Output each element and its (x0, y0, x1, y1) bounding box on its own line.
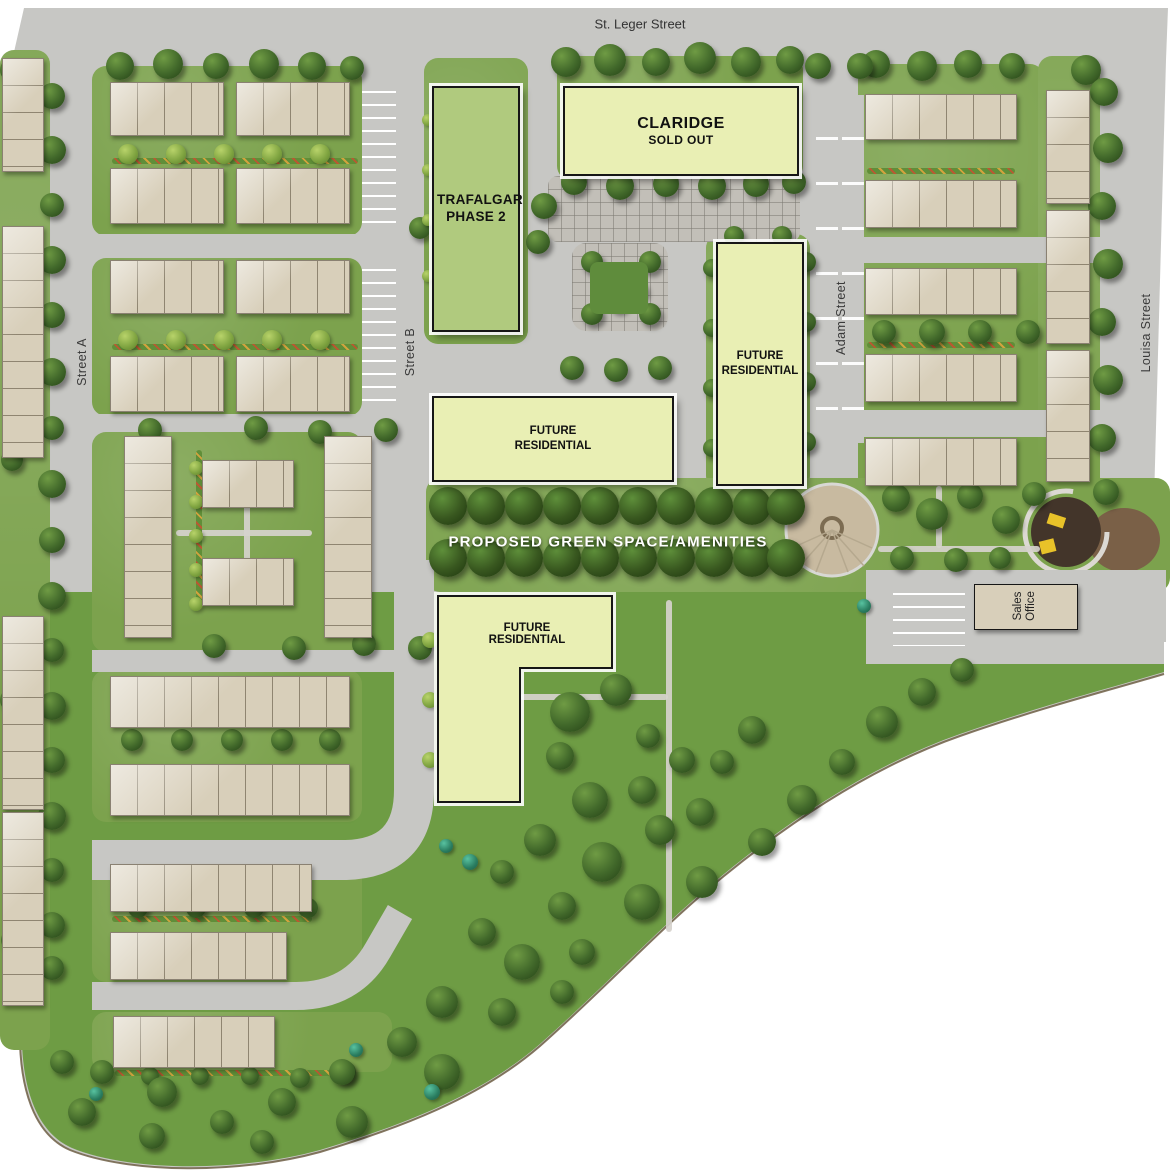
townhouse-block (110, 260, 224, 314)
street-label-st-leger: St. Leger Street (594, 17, 685, 32)
townhouse-block (236, 82, 350, 136)
street-label-street-a: Street A (75, 338, 89, 386)
future-residential-label: FUTURE RESIDENTIAL (503, 424, 603, 454)
townhouse-block (1046, 350, 1090, 482)
trafalgar-label: TRAFALGAR PHASE 2 (437, 192, 515, 226)
street-label-street-b: Street B (403, 328, 417, 376)
townhouse-block (865, 180, 1017, 228)
townhouse-block (110, 356, 224, 412)
townhouse-block (124, 436, 172, 638)
townhouse-block (110, 676, 350, 728)
townhouse-block (236, 260, 350, 314)
future-residential-central-building[interactable]: FUTURE RESIDENTIAL (432, 396, 674, 482)
townhouse-block (2, 616, 44, 810)
townhouse-block (865, 94, 1017, 140)
townhouse-block (865, 354, 1017, 402)
townhouse-block (202, 460, 294, 508)
street-label-louisa: Louisa Street (1139, 294, 1153, 373)
townhouse-block (2, 812, 44, 1006)
townhouse-block (324, 436, 372, 638)
site-plan-map: TRAFALGAR PHASE 2 CLARIDGE SOLD OUT FUTU… (0, 0, 1170, 1176)
townhouse-block (2, 58, 44, 172)
townhouse-block (110, 864, 312, 912)
townhouse-block (236, 168, 350, 224)
townhouse-block (1046, 90, 1090, 204)
future-residential-label: FUTURE RESIDENTIAL (472, 622, 582, 646)
townhouse-block (110, 168, 224, 224)
claridge-building[interactable]: CLARIDGE SOLD OUT (563, 86, 799, 176)
townhouse-block (110, 82, 224, 136)
townhouse-block (236, 356, 350, 412)
townhouse-block (865, 438, 1017, 486)
townhouse-block (1046, 210, 1090, 344)
sales-office-label: Sales Office (1012, 582, 1038, 630)
townhouse-block (110, 764, 350, 816)
claridge-name: CLARIDGE (637, 115, 725, 133)
townhouse-block (113, 1016, 275, 1068)
green-space-annotation: PROPOSED GREEN SPACE/AMENITIES (448, 534, 767, 551)
future-residential-label: FUTURE RESIDENTIAL (720, 349, 800, 379)
trafalgar-phase2-building[interactable]: TRAFALGAR PHASE 2 (432, 86, 520, 332)
claridge-status: SOLD OUT (637, 133, 725, 147)
townhouse-block (2, 226, 44, 458)
future-residential-east-building[interactable]: FUTURE RESIDENTIAL (716, 242, 804, 486)
townhouse-block (865, 268, 1017, 315)
townhouse-block (202, 558, 294, 606)
townhouse-block (110, 932, 287, 980)
street-label-adam: Adam Street (834, 281, 848, 355)
